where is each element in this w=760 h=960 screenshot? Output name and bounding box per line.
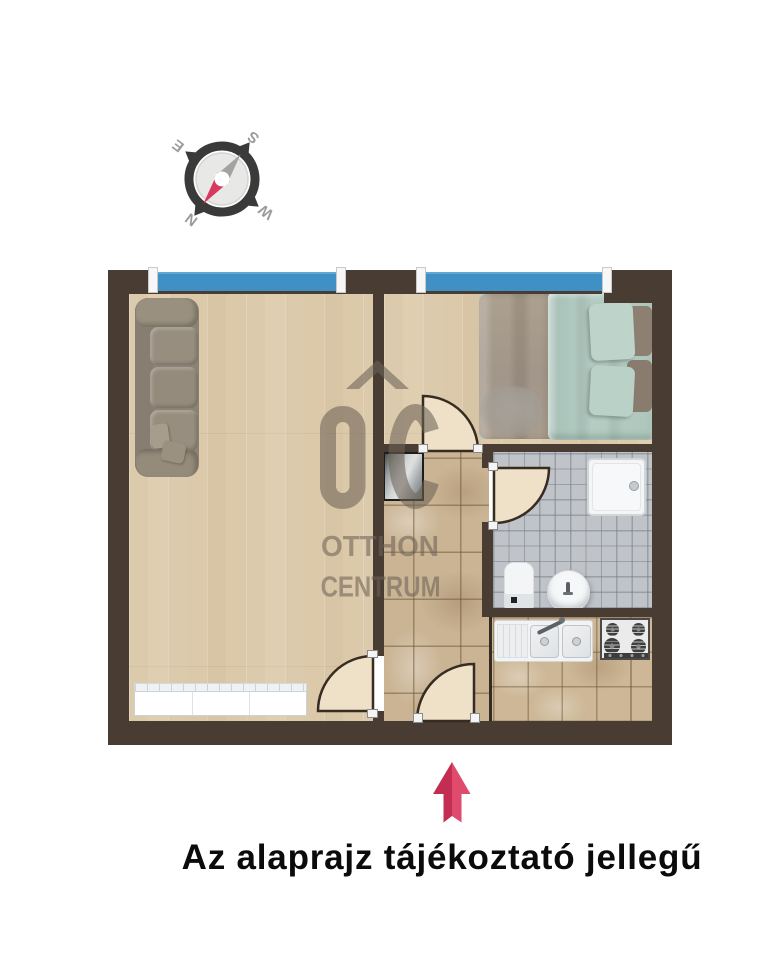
svg-text:E: E: [169, 136, 187, 156]
svg-text:S: S: [244, 127, 262, 147]
svg-text:OTTHON: OTTHON: [321, 531, 439, 563]
svg-text:W: W: [255, 200, 277, 223]
svg-text:CENTRUM: CENTRUM: [321, 572, 441, 604]
